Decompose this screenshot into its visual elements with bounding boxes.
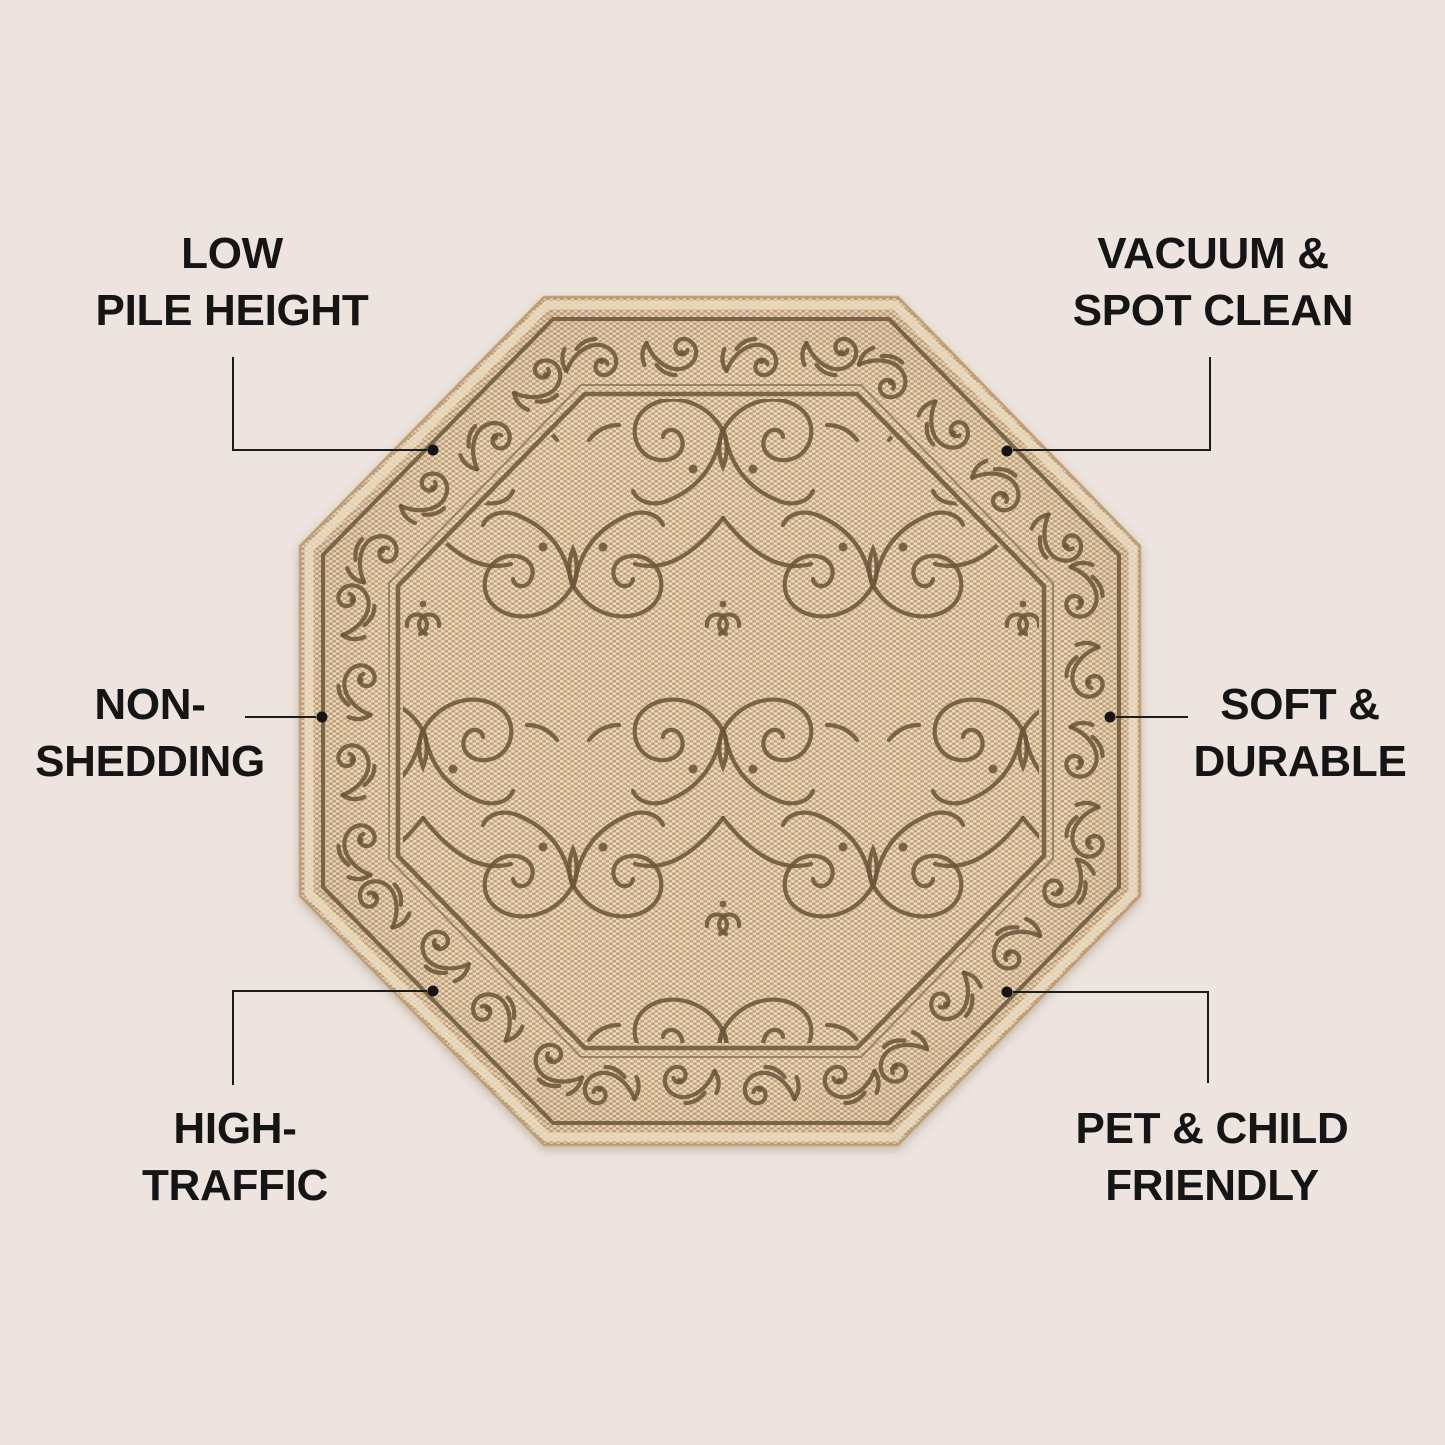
infographic-stage: LOW PILE HEIGHT VACUUM & SPOT CLEAN NON-…	[0, 0, 1445, 1445]
callout-dot-top-right	[1002, 446, 1013, 457]
callout-line: FRIENDLY	[1076, 1157, 1349, 1214]
leader-line-top-left	[233, 357, 427, 450]
callout-dot-top-left	[428, 445, 439, 456]
callout-line: SPOT CLEAN	[1073, 282, 1354, 339]
leader-line-bottom-left	[233, 991, 427, 1085]
callout-line: LOW	[96, 225, 369, 282]
callout-label-vacuum-spot-clean: VACUUM & SPOT CLEAN	[1073, 225, 1354, 339]
leader-line-top-right	[1013, 357, 1210, 450]
callout-label-soft-durable: SOFT & DURABLE	[1193, 676, 1406, 790]
callout-line: HIGH-	[142, 1100, 328, 1157]
callout-line: DURABLE	[1193, 733, 1406, 790]
callout-label-non-shedding: NON- SHEDDING	[35, 676, 265, 790]
callout-line: SOFT &	[1193, 676, 1406, 733]
callout-dot-mid-right	[1105, 712, 1116, 723]
callout-line: TRAFFIC	[142, 1157, 328, 1214]
callout-line: VACUUM &	[1073, 225, 1354, 282]
callout-line: NON-	[35, 676, 265, 733]
callout-dot-bottom-right	[1002, 987, 1013, 998]
callout-dot-mid-left	[317, 712, 328, 723]
callout-label-high-traffic: HIGH- TRAFFIC	[142, 1100, 328, 1214]
callout-line: PILE HEIGHT	[96, 282, 369, 339]
callout-line: SHEDDING	[35, 733, 265, 790]
callout-dot-bottom-left	[428, 986, 439, 997]
callout-label-pet-child-friendly: PET & CHILD FRIENDLY	[1076, 1100, 1349, 1214]
callout-line: PET & CHILD	[1076, 1100, 1349, 1157]
callout-label-low-pile-height: LOW PILE HEIGHT	[96, 225, 369, 339]
leader-line-bottom-right	[1013, 992, 1208, 1083]
